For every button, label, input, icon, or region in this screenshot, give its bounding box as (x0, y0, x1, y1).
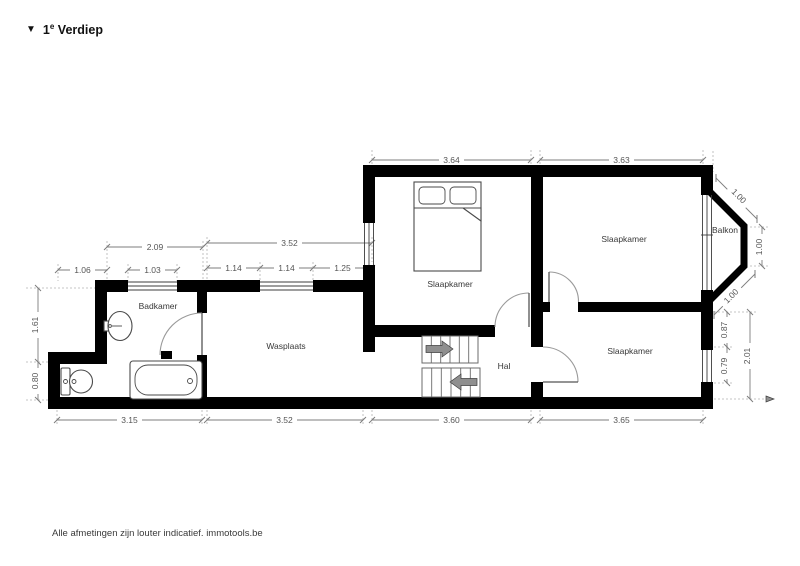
dim-label: 3.60 (443, 415, 460, 425)
floorplan: 3.64 3.63 2.09 1.06 1.03 3.52 1.14 1.14 … (0, 0, 800, 566)
bathtub (130, 361, 202, 399)
staircase (422, 336, 480, 397)
sink (104, 312, 132, 341)
dim-label: 2.01 (742, 347, 752, 364)
door-badkamer (160, 313, 202, 359)
window-wasplaats (260, 282, 313, 290)
dim-label: 3.52 (281, 238, 298, 248)
dim-label: 0.87 (719, 321, 729, 338)
extension-arrow-icon (766, 396, 774, 402)
dim-label: 3.64 (443, 155, 460, 165)
stairs-upper-flight (422, 336, 478, 363)
dim-label: 1.03 (144, 265, 161, 275)
dim-label: 1.14 (278, 263, 295, 273)
window-badkamer (128, 282, 177, 290)
door-slaapkamer-middle (495, 293, 529, 327)
room-label-hal: Hal (498, 361, 511, 371)
room-label-balkon: Balkon (712, 225, 738, 235)
toilet (61, 368, 93, 395)
room-label-badkamer: Badkamer (139, 301, 178, 311)
dim-label: 3.52 (276, 415, 293, 425)
door-slaapkamer-top-right (549, 272, 579, 302)
dim-label: 3.65 (613, 415, 630, 425)
footer-disclaimer: Alle afmetingen zijn louter indicatief. … (52, 528, 263, 539)
room-label-slaapkamer-middle: Slaapkamer (427, 279, 473, 289)
dim-label: 3.15 (121, 415, 138, 425)
stairs-lower-flight (422, 368, 480, 397)
dim-label: 1.14 (225, 263, 242, 273)
dim-label: 1.00 (754, 238, 764, 255)
bed (414, 182, 481, 271)
dim-label: 3.63 (613, 155, 630, 165)
room-label-wasplaats: Wasplaats (266, 341, 305, 351)
dim-label: 0.79 (719, 357, 729, 374)
door-slaapkamer-bottom-right (543, 347, 578, 382)
room-label-slaapkamer-top-right: Slaapkamer (601, 234, 647, 244)
dim-label: 1.25 (334, 263, 351, 273)
dim-label: 1.61 (30, 316, 40, 333)
room-label-slaapkamer-bottom-right: Slaapkamer (607, 346, 653, 356)
dim-label: 2.09 (147, 242, 164, 252)
window-slaapkamer-southeast (703, 350, 712, 382)
dim-label: 1.06 (74, 265, 91, 275)
window-balcony (701, 195, 713, 290)
dim-label: 0.80 (30, 372, 40, 389)
